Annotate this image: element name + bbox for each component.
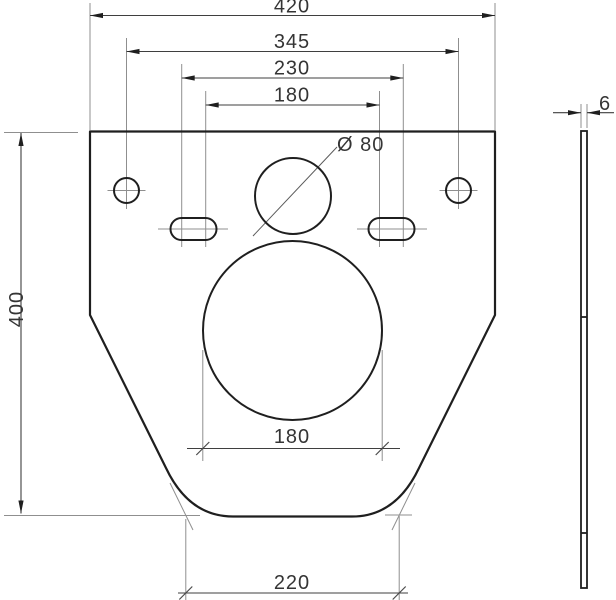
plate-holes xyxy=(114,158,471,420)
label-thickness: 6 xyxy=(599,93,611,115)
tangent-slash-left xyxy=(170,483,193,530)
bowl-opening-circle xyxy=(203,241,382,420)
side-view-strip xyxy=(581,131,587,588)
side-view xyxy=(581,131,587,588)
label-slot-outer-spacing: 230 xyxy=(274,58,310,80)
label-bottom-width: 220 xyxy=(274,572,310,594)
arrowhead-icon xyxy=(127,49,140,54)
arrowhead-icon xyxy=(182,75,195,80)
arrowhead-icon xyxy=(90,13,103,18)
arrowhead-icon xyxy=(18,133,23,146)
tangent-slash-right xyxy=(392,483,415,530)
label-center-hole-diameter: Ø 80 xyxy=(337,134,384,156)
label-hole-spacing: 345 xyxy=(274,31,310,53)
arrowhead-icon xyxy=(446,49,459,54)
label-overall-width: 420 xyxy=(274,0,310,18)
center-hole-80 xyxy=(255,158,331,234)
arrowhead-icon xyxy=(367,102,380,107)
arrowhead-icon xyxy=(390,75,403,80)
label-overall-height: 400 xyxy=(6,291,28,327)
arrowhead-icon xyxy=(482,13,495,18)
label-bowl-opening: 180 xyxy=(274,426,310,448)
dimension-lines xyxy=(18,13,614,600)
dimension-labels: 420 345 230 180 Ø 80 400 180 220 6 xyxy=(6,0,611,594)
arrowhead-icon xyxy=(206,102,219,107)
technical-drawing-canvas: 420 345 230 180 Ø 80 400 180 220 6 xyxy=(0,0,616,600)
arrowhead-icon xyxy=(18,501,23,514)
drawing-svg: 420 345 230 180 Ø 80 400 180 220 6 xyxy=(0,0,616,600)
arrowhead-icon xyxy=(568,110,581,115)
plate-outline xyxy=(90,132,495,517)
label-slot-inner-spacing: 180 xyxy=(274,85,310,107)
